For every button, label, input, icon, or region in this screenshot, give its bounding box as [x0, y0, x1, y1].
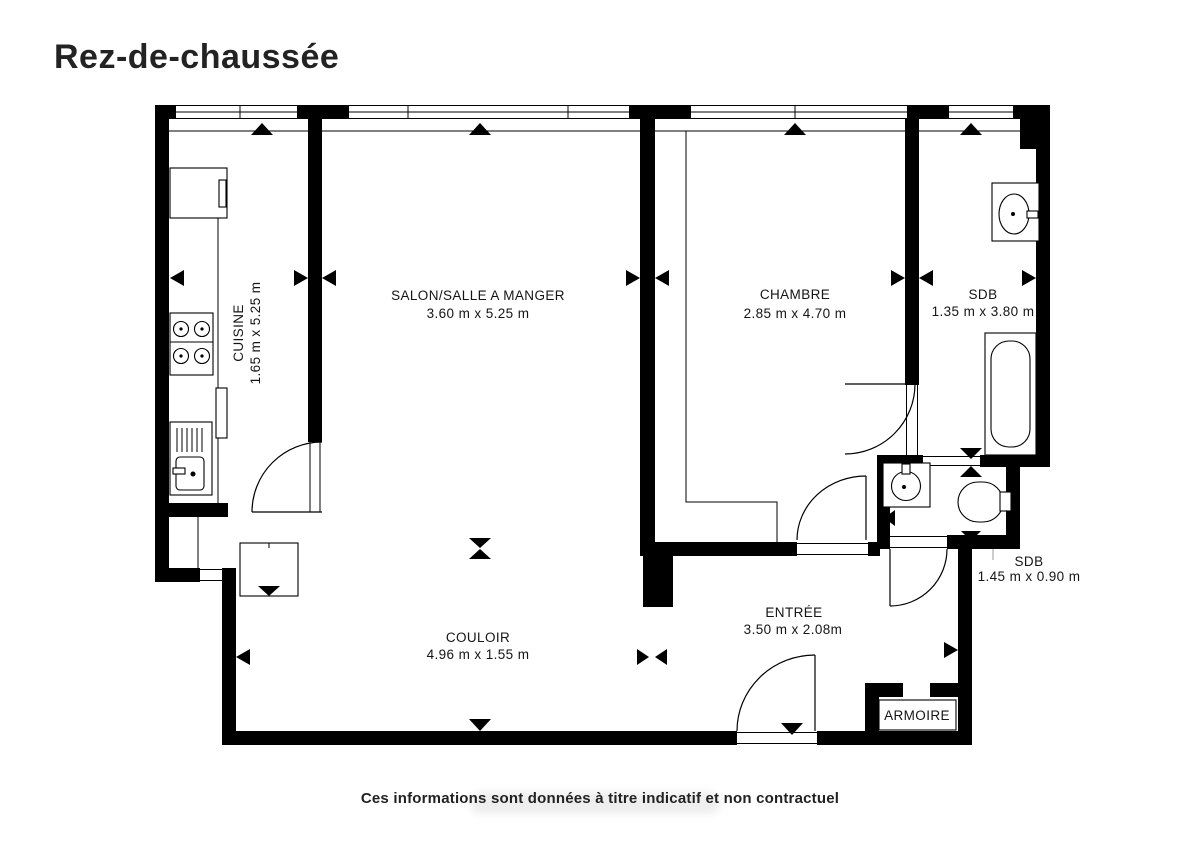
window-salon [348, 105, 630, 119]
room-dims-sdb-haut: 1.35 m x 3.80 m [932, 304, 1035, 319]
room-labels: CUISINE 1.65 m x 5.25 m SALON/SALLE A MA… [231, 282, 1080, 730]
toilet [958, 482, 1011, 522]
room-name-chambre: CHAMBRE [760, 287, 830, 302]
room-name-entree: ENTRÉE [765, 605, 822, 620]
disclaimer-text: Ces informations sont données à titre in… [0, 790, 1200, 807]
room-name-sdb-bas: SDB [1015, 554, 1044, 569]
room-dims-couloir: 4.96 m x 1.55 m [427, 647, 530, 662]
armoire-box: ARMOIRE [879, 700, 956, 730]
closet [240, 543, 298, 596]
room-name-couloir: COULOIR [446, 630, 510, 645]
sink-unit [170, 422, 212, 495]
kitchen-fixtures [170, 168, 298, 596]
window-chambre [690, 105, 908, 119]
door-cuisine [252, 442, 322, 512]
door-wc [890, 535, 947, 606]
washbasin-wc [883, 463, 930, 507]
room-name-salon: SALON/SALLE A MANGER [391, 288, 565, 303]
door-entree-chambre [797, 476, 868, 556]
room-dims-salon: 3.60 m x 5.25 m [427, 306, 530, 321]
label-cuisine: CUISINE 1.65 m x 5.25 m [231, 282, 263, 385]
washbasin-sdb [992, 183, 1039, 241]
door-entrance [737, 655, 817, 745]
fridge [170, 168, 227, 218]
floorplan-page: Rez-de-chaussée [0, 0, 1200, 849]
window-cuisine [175, 105, 298, 119]
opening-couloir-left [200, 570, 222, 581]
stove [170, 313, 213, 375]
room-name-sdb-haut: SDB [969, 287, 998, 302]
room-name-armoire: ARMOIRE [884, 708, 950, 723]
room-dims-cuisine: 1.65 m x 5.25 m [248, 282, 263, 385]
bathtub [985, 333, 1036, 455]
room-dims-chambre: 2.85 m x 4.70 m [744, 306, 847, 321]
thin-partitions [198, 131, 777, 568]
radiator [216, 388, 227, 438]
room-name-cuisine: CUISINE [231, 304, 246, 362]
floorplan-drawing: CUISINE 1.65 m x 5.25 m SALON/SALLE A MA… [0, 0, 1200, 849]
window-sdb [948, 105, 1014, 119]
door-chambre-sdb [845, 384, 918, 455]
room-dims-entree: 3.50 m x 2.08m [744, 622, 843, 637]
room-dims-sdb-bas: 1.45 m x 0.90 m [978, 569, 1081, 584]
walls [155, 105, 1050, 745]
